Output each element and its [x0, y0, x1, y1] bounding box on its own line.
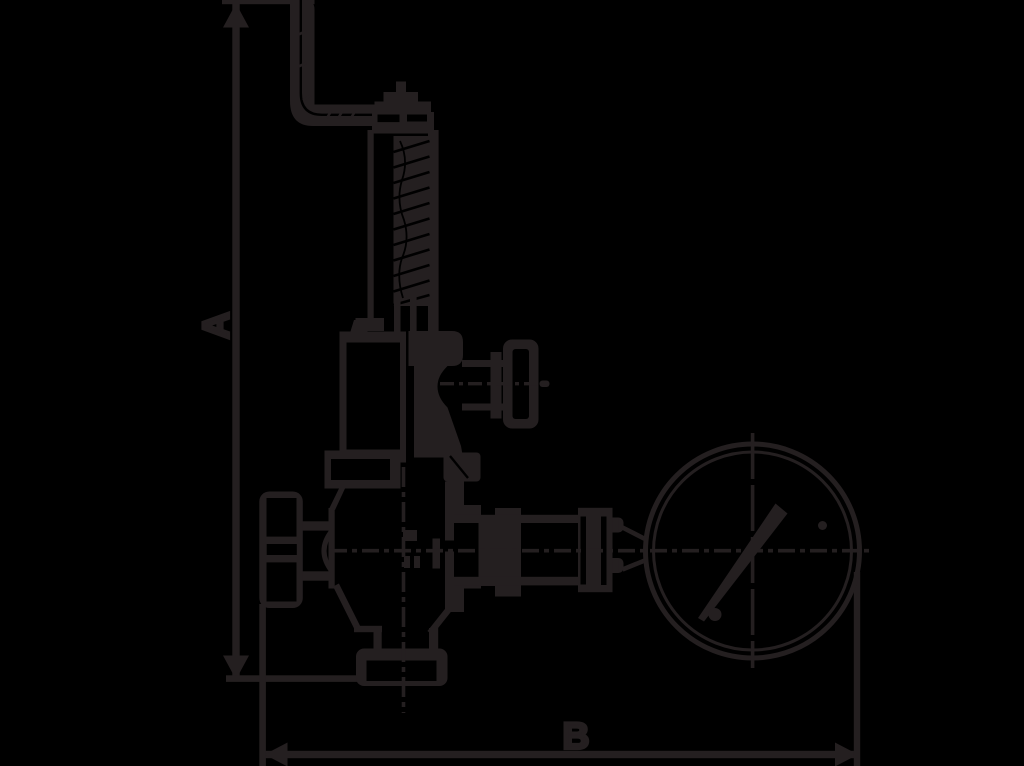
- svg-text:B: B: [563, 716, 590, 757]
- svg-text:A: A: [196, 312, 237, 339]
